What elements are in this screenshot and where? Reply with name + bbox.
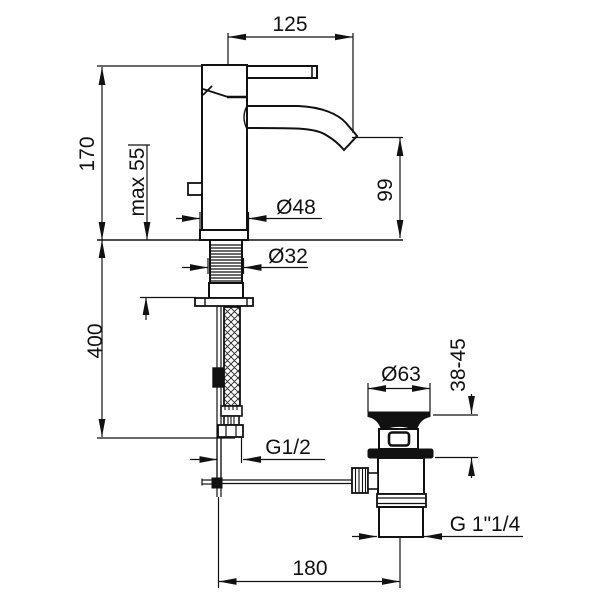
waste-cap (368, 412, 430, 429)
dim-d63: Ø63 (368, 363, 430, 412)
shank-lower (209, 283, 243, 298)
faucet-technical-drawing: 125 170 max 55 Ø48 (0, 0, 603, 603)
dim-99: 99 (352, 138, 403, 239)
dim-label-waste-deck-range: 38-45 (447, 338, 470, 392)
popup-knob (188, 183, 202, 195)
dim-max55: max 55 (126, 145, 196, 320)
waste-body (378, 458, 424, 494)
spout (247, 106, 357, 150)
dim-label-shank-diameter: Ø32 (268, 245, 308, 268)
dim-label-supply-thread: G1/2 (265, 436, 311, 459)
dim-label-max-deck: max 55 (126, 148, 149, 217)
lever-handle (247, 66, 317, 78)
dim-180: 180 (219, 497, 401, 588)
dim-d48: Ø48 (176, 196, 322, 233)
drawing-canvas: 125 170 max 55 Ø48 (0, 0, 603, 603)
hose-collar (221, 406, 242, 416)
dim-g12: G1/2 (190, 436, 325, 463)
dim-label-spout-reach: 125 (272, 13, 307, 36)
hose-hex-nut (218, 425, 243, 437)
shank-threads (210, 245, 242, 281)
base-plate (200, 230, 248, 240)
dim-label-base-diameter: Ø48 (276, 196, 316, 219)
flex-hose (224, 307, 240, 406)
waste-coupling (377, 494, 426, 507)
dim-label-rod-distance: 180 (292, 557, 327, 580)
dim-3845: 38-45 (433, 338, 478, 478)
dim-d32: Ø32 (182, 245, 308, 274)
waste-overflow-slot (389, 433, 409, 446)
dim-label-hose-drop: 400 (84, 323, 107, 358)
threaded-shank (210, 240, 242, 283)
rod-ball-joint (368, 473, 378, 489)
popup-waste (352, 412, 433, 537)
dim-label-spout-height: 99 (374, 178, 397, 201)
dim-label-fitting-height: 170 (76, 136, 99, 171)
dim-label-waste-diameter: Ø63 (381, 363, 421, 386)
rod-clamp (212, 478, 222, 488)
mounting-flange (195, 298, 253, 306)
dim-g114: G 1"1/4 (352, 513, 523, 540)
waste-tailpipe (379, 507, 423, 537)
dim-label-waste-thread: G 1"1/4 (450, 513, 521, 536)
waste-seal-flange (368, 449, 433, 458)
rod-joint (213, 368, 223, 387)
dimension-lines: 125 170 max 55 Ø48 (76, 13, 523, 588)
